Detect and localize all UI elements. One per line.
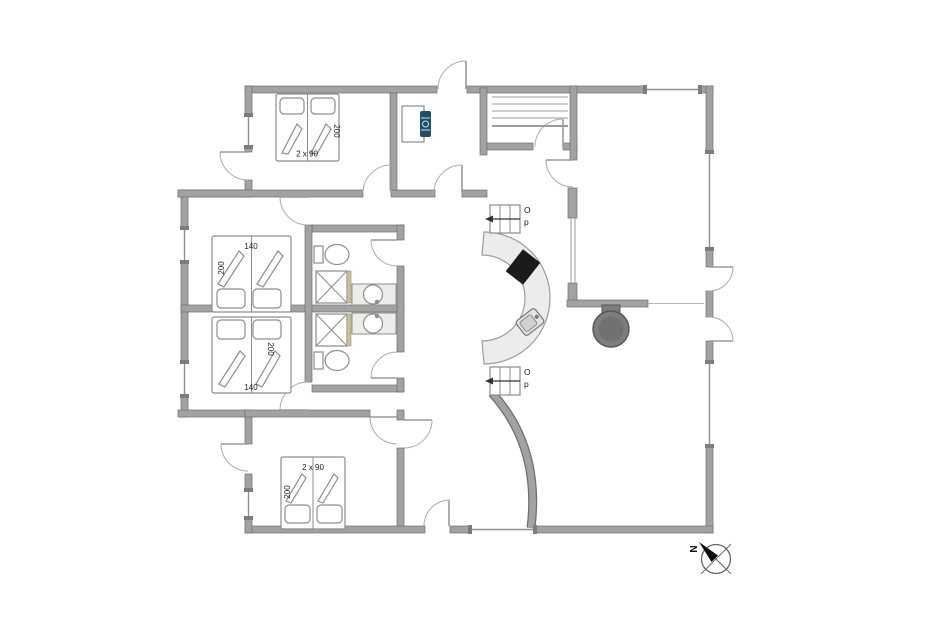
wall-left-sw-2 (245, 474, 252, 490)
bathroom-1 (314, 245, 396, 306)
terrace-double-door-right-lower (709, 317, 733, 341)
terrace-door-bottom (424, 500, 450, 526)
bedroom-s-exterior-door (221, 444, 248, 471)
pillow (317, 505, 342, 523)
wall-right-4 (706, 341, 713, 362)
wall-corridor-3 (397, 378, 404, 392)
pillow (217, 289, 245, 308)
closet-door (535, 119, 563, 147)
wall-right-2 (706, 250, 713, 267)
wall-h2-c (462, 190, 487, 197)
wall-wing-south (178, 410, 252, 417)
bedroom-s-door (370, 417, 397, 444)
bed-length-label: 200 (217, 261, 226, 275)
bed-width-label: 2 x 90 (302, 463, 324, 472)
curved-counter (482, 232, 550, 364)
wall-bath2-south (312, 385, 404, 392)
sink-icon (352, 313, 396, 334)
bedroom-nw-exterior-door (220, 152, 248, 180)
window-wing-lower (180, 360, 189, 398)
closet-shelves (492, 97, 568, 126)
wall-top-west (245, 86, 437, 93)
window-wing-upper (180, 226, 189, 264)
bathroom-1-door (371, 240, 397, 266)
wall-corridor-5 (397, 448, 404, 526)
floor-plan-page: 2 x 90 200 140 200 140 200 2 x 90 200 (0, 0, 930, 620)
stair-upper: O p (485, 205, 531, 233)
north-label: N (689, 545, 700, 552)
water-heater (402, 106, 431, 142)
bathroom-2-door (371, 352, 397, 378)
wall-bottom-east (535, 526, 713, 533)
window-bottom (468, 525, 537, 534)
pillow (285, 505, 310, 523)
wall-corridor-1 (397, 225, 404, 240)
bed-width-label: 2 x 90 (296, 150, 318, 159)
wall-right-5 (706, 447, 713, 533)
bed-length-label: 200 (266, 342, 275, 356)
toilet-icon (314, 351, 349, 371)
wall-closet-south-a (487, 143, 533, 150)
wall-bath1-north (312, 225, 404, 232)
sink-icon (352, 284, 396, 305)
bed-length-label: 200 (283, 485, 292, 499)
wall-rail-stub-top (568, 188, 577, 218)
pillow (311, 98, 335, 114)
wall-right-1 (706, 86, 713, 152)
floor-plan-svg: 2 x 90 200 140 200 140 200 2 x 90 200 (0, 0, 930, 620)
vestibule-living-door (546, 160, 573, 187)
wall-h2-a (178, 190, 363, 197)
wall-closet-west (480, 88, 487, 155)
window-top-living (643, 85, 702, 94)
bedroom-w1-door (280, 197, 308, 225)
terrace-double-door-right-upper (709, 267, 733, 291)
window-bedroom-s (244, 488, 253, 520)
bathroom-2 (314, 313, 396, 371)
stair-lower: O p (485, 367, 531, 395)
stair-label: p (524, 217, 529, 227)
wall-corridor-2 (397, 266, 404, 352)
bed-width-label: 140 (244, 242, 258, 251)
window-right-lower (705, 360, 714, 448)
wall-v3 (305, 225, 312, 382)
wood-stove (593, 305, 629, 347)
kitchen: O p O p (482, 205, 550, 395)
bedroom-nw-door (363, 165, 391, 193)
bedroom-nw-bed: 2 x 90 200 (276, 94, 341, 161)
wall-right-3 (706, 291, 713, 317)
shower-icon (316, 314, 351, 346)
wall-left-sw-3 (245, 518, 252, 533)
wall-left-nw-1 (245, 86, 252, 115)
bedroom-s-bed: 2 x 90 200 (281, 457, 345, 529)
stair-arrow-icon (485, 378, 493, 385)
water-heater-coil-icon (420, 111, 431, 137)
wall-corridor-4 (397, 410, 404, 420)
front-door (438, 61, 466, 89)
window-bedroom-nw (244, 113, 253, 149)
pillow (217, 320, 245, 339)
compass-rose: N (689, 542, 731, 574)
window-right-upper (705, 150, 714, 251)
bed-width-label: 140 (244, 383, 258, 392)
shower-icon (316, 271, 351, 303)
kitchen-railing (571, 218, 575, 283)
pillow (280, 98, 304, 114)
pillow (253, 289, 281, 308)
wall-top-east (467, 86, 645, 93)
wall-h2-b (391, 190, 435, 197)
wall-h4 (245, 410, 370, 417)
wall-living-west (570, 86, 577, 160)
bed-length-label: 200 (332, 124, 341, 138)
stair-label: p (524, 379, 529, 389)
wall-bottom-mid (450, 526, 470, 533)
hall-door (404, 420, 432, 448)
pillow (253, 320, 281, 339)
entrance-hall-door (434, 165, 462, 193)
stair-label: O (524, 367, 531, 377)
bedroom-w1-bed: 140 200 (212, 236, 291, 312)
stair-label: O (524, 205, 531, 215)
stair-arrow-icon (485, 216, 493, 223)
toilet-icon (314, 245, 349, 265)
bedroom-w2-bed: 140 200 (212, 317, 291, 393)
